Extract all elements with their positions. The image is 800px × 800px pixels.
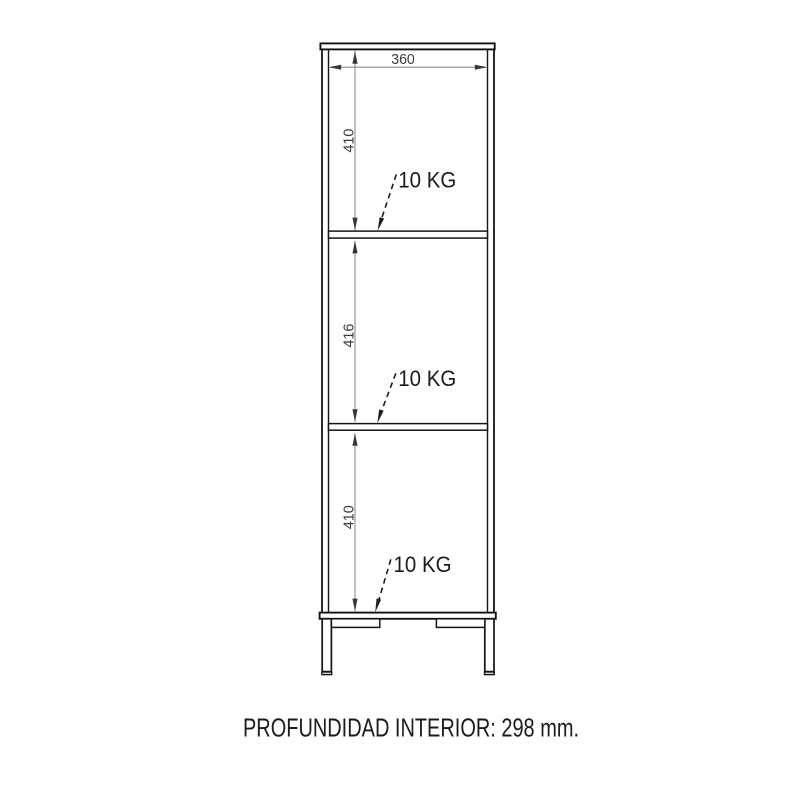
svg-text:416: 416 (340, 324, 357, 348)
svg-text:360: 360 (391, 51, 415, 68)
svg-text:PROFUNDIDAD INTERIOR: 298 mm.: PROFUNDIDAD INTERIOR: 298 mm. (243, 712, 579, 742)
svg-text:10 KG: 10 KG (394, 552, 452, 577)
svg-text:10 KG: 10 KG (398, 168, 456, 193)
svg-text:410: 410 (340, 505, 357, 529)
svg-text:410: 410 (340, 129, 357, 153)
svg-text:10 KG: 10 KG (398, 366, 456, 391)
